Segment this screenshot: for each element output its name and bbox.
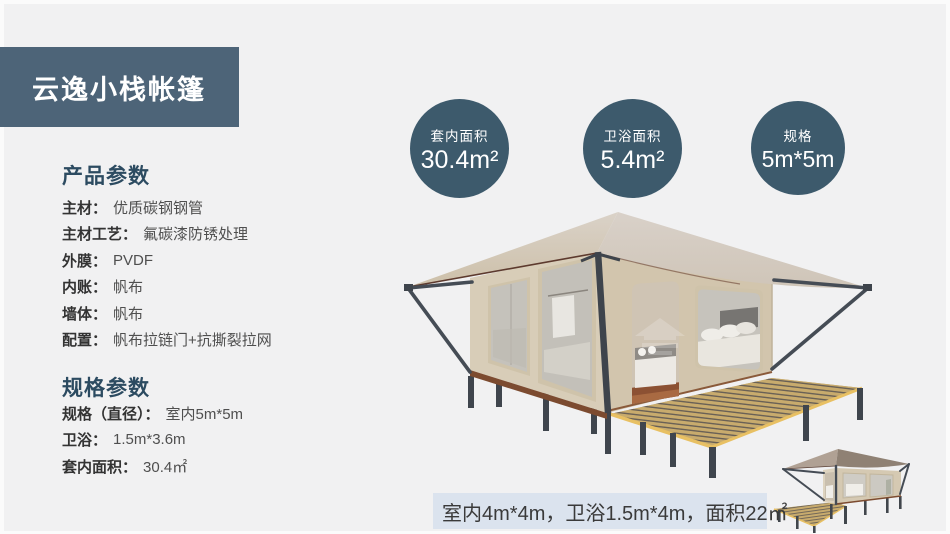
badge-label: 规格 bbox=[784, 125, 813, 145]
param-row: 内账： 帆布 bbox=[62, 274, 272, 301]
param-value: 室内5m*5m bbox=[166, 403, 244, 424]
param-row: 外膜： PVDF bbox=[62, 247, 272, 274]
param-label: 墙体： bbox=[62, 303, 107, 324]
dimensions-caption: 室内4m*4m，卫浴1.5m*4m，面积22㎡ bbox=[433, 493, 767, 529]
title-banner: 云逸小栈帐篷 bbox=[0, 47, 239, 127]
spec-params-heading: 规格参数 bbox=[62, 372, 150, 402]
param-value: 1.5m*3.6m bbox=[113, 431, 186, 448]
slide: 云逸小栈帐篷 产品参数 主材： 优质碳钢钢管 主材工艺： 氟碳漆防锈处理 外膜：… bbox=[0, 0, 950, 534]
param-row: 墙体： 帆布 bbox=[62, 300, 272, 327]
badge-value: 5m*5m bbox=[762, 148, 835, 171]
param-value: 氟碳漆防锈处理 bbox=[143, 223, 248, 244]
tent-thumbnail bbox=[768, 442, 950, 534]
param-value: 帆布拉链门+抗撕裂拉网 bbox=[113, 329, 272, 350]
param-label: 主材： bbox=[62, 197, 107, 218]
param-value: 优质碳钢钢管 bbox=[113, 197, 203, 218]
badge-internal-area: 套内面积 30.4m² bbox=[410, 99, 509, 198]
param-label: 内账： bbox=[62, 276, 107, 297]
param-value: 帆布 bbox=[113, 276, 143, 297]
param-value: 30.4㎡ bbox=[143, 456, 187, 477]
frame-top bbox=[0, 0, 950, 4]
param-label: 卫浴： bbox=[62, 429, 107, 450]
param-row: 主材工艺： 氟碳漆防锈处理 bbox=[62, 221, 272, 248]
product-params-heading: 产品参数 bbox=[62, 160, 150, 190]
param-label: 主材工艺： bbox=[62, 223, 137, 244]
param-row: 主材： 优质碳钢钢管 bbox=[62, 194, 272, 221]
param-row: 配置： 帆布拉链门+抗撕裂拉网 bbox=[62, 327, 272, 354]
page-title: 云逸小栈帐篷 bbox=[32, 68, 206, 107]
thumb-walls bbox=[823, 468, 901, 504]
tent-side-window-2 bbox=[538, 256, 596, 402]
thumb-roof bbox=[783, 449, 909, 469]
badge-bathroom-area: 卫浴面积 5.4m² bbox=[583, 99, 682, 198]
dimensions-caption-text: 室内4m*4m，卫浴1.5m*4m，面积22㎡ bbox=[442, 497, 788, 526]
tent-front-window bbox=[695, 285, 763, 372]
spec-params-list: 规格（直径）： 室内5m*5m 卫浴： 1.5m*3.6m 套内面积： 30.4… bbox=[62, 400, 243, 480]
param-label: 外膜： bbox=[62, 250, 107, 271]
param-label: 套内面积： bbox=[62, 456, 137, 477]
param-row: 规格（直径）： 室内5m*5m bbox=[62, 400, 243, 427]
tent-left-wall bbox=[470, 250, 607, 419]
param-row: 套内面积： 30.4㎡ bbox=[62, 453, 243, 480]
badge-size: 规格 5m*5m bbox=[751, 101, 845, 195]
param-label: 规格（直径）： bbox=[62, 403, 160, 424]
badge-label: 套内面积 bbox=[431, 125, 489, 145]
tent-side-window-1 bbox=[488, 277, 530, 376]
param-row: 卫浴： 1.5m*3.6m bbox=[62, 427, 243, 454]
param-value: 帆布 bbox=[113, 303, 143, 324]
badge-value: 5.4m² bbox=[601, 148, 665, 173]
badge-label: 卫浴面积 bbox=[604, 125, 662, 145]
product-params-list: 主材： 优质碳钢钢管 主材工艺： 氟碳漆防锈处理 外膜： PVDF 内账： 帆布… bbox=[62, 194, 272, 353]
param-label: 配置： bbox=[62, 329, 107, 350]
param-value: PVDF bbox=[113, 252, 153, 269]
badge-value: 30.4m² bbox=[421, 148, 499, 173]
